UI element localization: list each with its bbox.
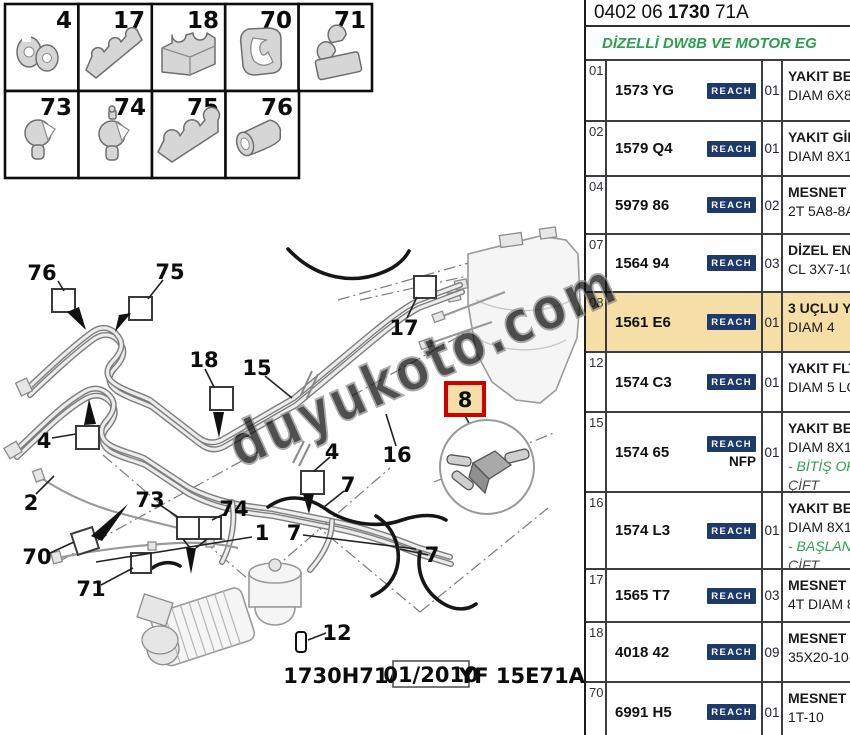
ref-cell: 01 xyxy=(586,61,607,120)
clip-legend: 4 17 18 70 71 73 74 75 76 xyxy=(5,4,372,178)
nfp-label: NFP xyxy=(729,454,756,469)
desc-cell: MESNET A4T DIAM 8 xyxy=(783,570,850,621)
part-number: 4018 42 xyxy=(615,644,669,661)
reach-badge[interactable]: REACH xyxy=(707,644,756,660)
clip-icon-70 xyxy=(241,28,282,75)
reach-badge[interactable]: REACH xyxy=(707,436,756,452)
reach-badge[interactable]: REACH xyxy=(707,83,756,99)
callout-1: 1 xyxy=(255,521,270,545)
part-12-item xyxy=(296,632,306,652)
desc-cell: MESNET A35X20-10-1 xyxy=(783,623,850,681)
part-number: 1579 Q4 xyxy=(615,140,673,157)
part-number: 1574 65 xyxy=(615,444,669,461)
diagram-caption: 1730H71A 01/2010 YF 15E71A xyxy=(283,661,584,688)
callout-18: 18 xyxy=(189,348,218,372)
qty-cell: 09 xyxy=(763,623,783,681)
parts-diagram: 4 17 18 70 71 73 74 75 76 xyxy=(0,0,584,735)
part-number: 1564 94 xyxy=(615,255,669,272)
model-subtitle: DİZELLİ DW8B VE MOTOR EG xyxy=(586,27,850,61)
reach-badge[interactable]: REACH xyxy=(707,523,756,539)
table-row[interactable]: 07 1564 94 REACH 03 DİZEL ENJCL 3X7-10 xyxy=(586,235,850,293)
part-cell: 4018 42 REACH xyxy=(607,623,763,681)
ref-cell: 12 xyxy=(586,353,607,411)
fuel-line-upper-bundle xyxy=(16,285,462,449)
part-number: 6991 H5 xyxy=(615,704,672,721)
parts-table-panel: 0402 06173071A DİZELLİ DW8B VE MOTOR EG … xyxy=(584,0,850,735)
callout-70: 70 xyxy=(22,545,51,569)
ref-cell: 07 xyxy=(586,235,607,291)
part-number: 1574 L3 xyxy=(615,522,670,539)
callout-76: 76 xyxy=(27,261,56,285)
table-row[interactable]: 70 6991 H5 REACH 01 MESNET A1T-10 xyxy=(586,683,850,735)
table-row[interactable]: 01 1573 YG REACH 01 YAKIT BESDIAM 6X8 xyxy=(586,61,850,122)
qty-cell: 03 xyxy=(763,570,783,621)
reach-badge[interactable]: REACH xyxy=(707,255,756,271)
table-row[interactable]: 17 1565 T7 REACH 03 MESNET A4T DIAM 8 xyxy=(586,570,850,623)
callout-12: 12 xyxy=(322,621,351,645)
part-cell: 1579 Q4 REACH xyxy=(607,122,763,175)
callout-73: 73 xyxy=(135,488,164,512)
desc-cell: YAKIT BESDIAM 8X10 - BİTİŞ OPÇİFT xyxy=(783,413,850,491)
desc-cell: DİZEL ENJCL 3X7-10 xyxy=(783,235,850,291)
reach-badge[interactable]: REACH xyxy=(707,704,756,720)
table-row[interactable]: 12 1574 C3 REACH 01 YAKIT FLTDIAM 5 LG xyxy=(586,353,850,413)
qty-cell: 01 xyxy=(763,61,783,120)
callout-8-highlight[interactable]: 8 xyxy=(440,383,534,514)
header-code-suffix: 71A xyxy=(715,2,749,24)
callout-16: 16 xyxy=(382,443,411,467)
reach-badge[interactable]: REACH xyxy=(707,588,756,604)
part-number: 1565 T7 xyxy=(615,587,670,604)
ref-cell: 15 xyxy=(586,413,607,491)
qty-cell: 03 xyxy=(763,235,783,291)
qty-cell: 01 xyxy=(763,353,783,411)
ref-cell: 04 xyxy=(586,177,607,233)
callout-7a: 7 xyxy=(341,473,356,497)
callout-4: 4 xyxy=(37,429,52,453)
legend-number-18: 18 xyxy=(187,8,219,34)
table-row-selected[interactable]: 08 1561 E6 REACH 01 3 UÇLU YADIAM 4 xyxy=(586,293,850,353)
parts-catalog-page: 4 17 18 70 71 73 74 75 76 xyxy=(0,0,850,735)
table-row[interactable]: 15 1574 65 REACHNFP 01 YAKIT BESDIAM 8X1… xyxy=(586,413,850,493)
ref-cell: 17 xyxy=(586,570,607,621)
ref-cell: 08 xyxy=(586,293,607,351)
caption-ref: YF 15E71A xyxy=(458,664,584,688)
qty-cell: 01 xyxy=(763,122,783,175)
desc-cell: 3 UÇLU YADIAM 4 xyxy=(783,293,850,351)
ref-cell: 16 xyxy=(586,493,607,568)
table-row[interactable]: 04 5979 86 REACH 02 MESNET A2T 5A8-8A xyxy=(586,177,850,235)
callout-15: 15 xyxy=(242,356,271,380)
part-cell: 1565 T7 REACH xyxy=(607,570,763,621)
table-row[interactable]: 02 1579 Q4 REACH 01 YAKIT GİDDIAM 8X10 xyxy=(586,122,850,177)
part-cell: 1561 E6 REACH xyxy=(607,293,763,351)
qty-cell: 01 xyxy=(763,493,783,568)
engine-assembly xyxy=(137,559,306,672)
reach-badge[interactable]: REACH xyxy=(707,374,756,390)
callout-75: 75 xyxy=(155,260,184,284)
ref-cell: 18 xyxy=(586,623,607,681)
qty-cell: 01 xyxy=(763,683,783,735)
header-code-bold: 1730 xyxy=(668,2,710,24)
desc-cell: MESNET A2T 5A8-8A xyxy=(783,177,850,233)
desc-cell: YAKIT BESDIAM 8X10 - BAŞLANGÇİFT xyxy=(783,493,850,568)
pipe-break-marks xyxy=(293,371,318,466)
part-number: 5979 86 xyxy=(615,197,669,214)
ref-cell: 02 xyxy=(586,122,607,175)
table-row[interactable]: 18 4018 42 REACH 09 MESNET A35X20-10-1 xyxy=(586,623,850,683)
qty-cell: 01 xyxy=(763,413,783,491)
part-cell: 6991 H5 REACH xyxy=(607,683,763,735)
part-number: 1561 E6 xyxy=(615,314,671,331)
qty-cell: 01 xyxy=(763,293,783,351)
callout-74: 74 xyxy=(219,497,248,521)
reach-badge[interactable]: REACH xyxy=(707,197,756,213)
qty-cell: 02 xyxy=(763,177,783,233)
reach-badge[interactable]: REACH xyxy=(707,141,756,157)
callout-4b: 4 xyxy=(325,440,340,464)
ref-cell: 70 xyxy=(586,683,607,735)
legend-number-4: 4 xyxy=(56,8,72,34)
legend-number-74: 74 xyxy=(114,95,146,121)
part-number: 1574 C3 xyxy=(615,374,672,391)
legend-number-76: 76 xyxy=(261,95,293,121)
header-code-prefix: 0402 06 xyxy=(594,2,663,24)
reach-badge[interactable]: REACH xyxy=(707,314,756,330)
callout-2: 2 xyxy=(24,491,39,515)
part-cell: 1574 L3 REACH xyxy=(607,493,763,568)
callout-17: 17 xyxy=(389,316,418,340)
table-header: 0402 06173071A xyxy=(586,0,850,27)
callout-8: 8 xyxy=(458,388,473,412)
desc-cell: YAKIT BESDIAM 6X8 xyxy=(783,61,850,120)
part-cell: 1564 94 REACH xyxy=(607,235,763,291)
part-number: 1573 YG xyxy=(615,82,674,99)
desc-cell: YAKIT GİDDIAM 8X10 xyxy=(783,122,850,175)
part-cell: 1574 C3 REACH xyxy=(607,353,763,411)
part-cell: 1574 65 REACHNFP xyxy=(607,413,763,491)
callout-7b: 7 xyxy=(287,521,302,545)
part-cell: 5979 86 REACH xyxy=(607,177,763,233)
callout-7c: 7 xyxy=(425,543,440,567)
desc-cell: YAKIT FLTDIAM 5 LG xyxy=(783,353,850,411)
legend-number-73: 73 xyxy=(40,95,72,121)
desc-cell: MESNET A1T-10 xyxy=(783,683,850,735)
callout-labels: 76 75 18 15 17 4 2 70 73 74 71 1 7 7 7 4… xyxy=(22,260,439,645)
part-cell: 1573 YG REACH xyxy=(607,61,763,120)
fuel-tank xyxy=(447,227,580,403)
callout-71: 71 xyxy=(76,577,105,601)
fuel-filter xyxy=(249,559,301,625)
table-row[interactable]: 16 1574 L3 REACH 01 YAKIT BESDIAM 8X10 -… xyxy=(586,493,850,570)
